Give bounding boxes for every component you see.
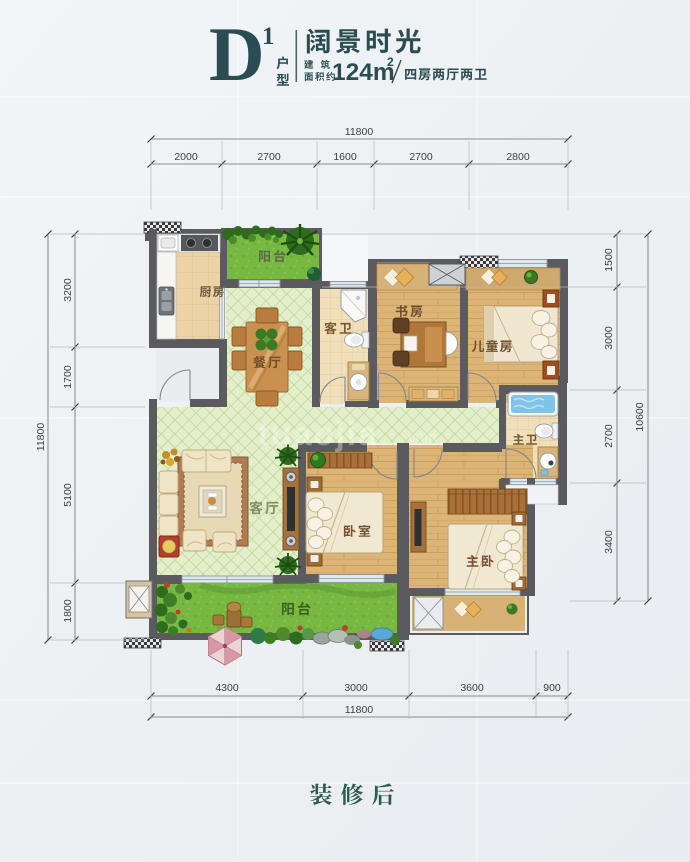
svg-text:3000: 3000 (603, 326, 615, 350)
svg-text:5100: 5100 (62, 483, 74, 507)
svg-text:1500: 1500 (603, 248, 615, 272)
svg-text:2000: 2000 (174, 151, 198, 163)
svg-text:4300: 4300 (215, 682, 239, 694)
svg-text:2: 2 (387, 55, 394, 69)
svg-text:3000: 3000 (344, 682, 368, 694)
svg-text:3200: 3200 (62, 278, 74, 302)
svg-text:1800: 1800 (62, 599, 74, 623)
svg-text:1: 1 (262, 23, 275, 50)
svg-text:1600: 1600 (333, 151, 357, 163)
svg-text:3600: 3600 (460, 682, 484, 694)
svg-text:2700: 2700 (257, 151, 281, 163)
svg-text:10600: 10600 (634, 402, 646, 431)
svg-text:2800: 2800 (506, 151, 530, 163)
svg-text:2700: 2700 (409, 151, 433, 163)
svg-text:11800: 11800 (345, 126, 374, 138)
svg-text:124m: 124m (332, 59, 395, 86)
svg-text:11800: 11800 (345, 704, 374, 716)
svg-text:2700: 2700 (603, 424, 615, 448)
svg-text:1700: 1700 (62, 365, 74, 389)
svg-text:900: 900 (543, 682, 561, 694)
svg-text:tuaojia: tuaojia (258, 415, 378, 452)
svg-text:D: D (209, 11, 265, 97)
svg-text:11800: 11800 (35, 423, 47, 452)
svg-text:.com: .com (404, 429, 437, 446)
svg-text:3400: 3400 (603, 530, 615, 554)
